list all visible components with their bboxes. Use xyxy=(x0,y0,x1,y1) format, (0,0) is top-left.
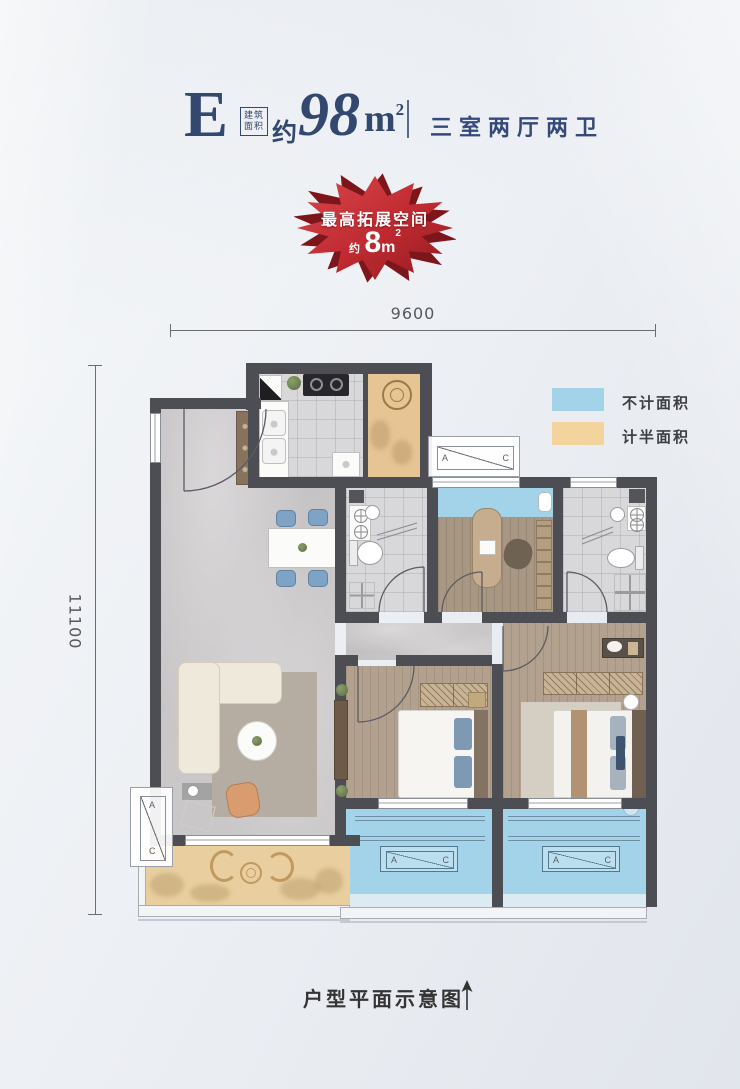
window xyxy=(528,798,622,809)
bath2-cabinet xyxy=(629,489,645,503)
area-tag-line2: 面积 xyxy=(244,121,264,132)
dimension-left-tick-top xyxy=(88,365,102,366)
kitchen-plant xyxy=(287,376,301,390)
bedroom1-pillow xyxy=(454,718,472,750)
wall xyxy=(248,477,438,488)
ac-letter-a: A xyxy=(391,856,397,865)
patio-table-top xyxy=(246,868,256,878)
water-heater-core xyxy=(390,388,404,402)
badge-unit-sup: 2 xyxy=(395,228,401,239)
ac-letter-a: A xyxy=(149,801,155,810)
kitchen-sink xyxy=(262,438,286,464)
bath1-toilet xyxy=(357,541,383,565)
approx-prefix: 约 xyxy=(272,113,297,149)
bedroom2-bench-bowl xyxy=(607,641,622,652)
badge-value: 约 8m2 xyxy=(294,228,456,258)
wall xyxy=(646,477,657,907)
plant xyxy=(336,684,348,696)
dining-plant xyxy=(298,543,307,552)
bedroom2-wardrobe xyxy=(543,672,643,695)
kitchen-sink xyxy=(262,410,286,436)
wall xyxy=(335,798,378,809)
ac-letter-a: A xyxy=(442,454,448,463)
wall xyxy=(246,363,426,374)
railing xyxy=(138,905,350,917)
wall xyxy=(335,655,358,666)
laptop xyxy=(479,540,496,555)
stove-burner xyxy=(310,378,323,391)
bath2-vanity xyxy=(614,574,646,611)
ac-symbol: A C xyxy=(548,851,616,869)
dimension-top-tick-right xyxy=(655,324,656,337)
header: E 建筑 面积 约 98 m2 三室两厅两卫 xyxy=(0,0,740,160)
wall xyxy=(482,612,567,623)
fridge xyxy=(259,375,282,401)
layout-text: 三室两厅两卫 xyxy=(430,110,604,142)
bedroom1-headboard xyxy=(474,710,488,798)
dimension-top-label: 9600 xyxy=(170,304,656,323)
ac-platform-balcony1: A C xyxy=(380,846,458,872)
floor-lamp xyxy=(187,785,199,797)
utility-shadow xyxy=(370,420,390,450)
dishwasher xyxy=(332,452,360,477)
bath2-toilet xyxy=(607,548,635,568)
patio-plant xyxy=(315,868,343,894)
patio-chair xyxy=(210,850,238,882)
area-unit-base: m xyxy=(364,98,396,140)
ac-platform-top: A C xyxy=(428,436,520,477)
wall xyxy=(492,664,503,907)
bedroom1-nightstand xyxy=(468,692,486,708)
wall xyxy=(248,374,259,488)
wall xyxy=(427,488,438,612)
area-type-tag: 建筑 面积 xyxy=(240,107,268,136)
promo-badge: 最高拓展空间 约 8m2 xyxy=(294,168,456,288)
patio-plant xyxy=(150,873,184,897)
bedroom2-throw xyxy=(571,710,587,798)
ac-symbol: A C xyxy=(437,446,514,470)
wall xyxy=(607,612,646,623)
dimension-left-line xyxy=(95,365,96,915)
railing xyxy=(340,907,647,919)
unit-letter: E xyxy=(184,82,228,148)
window xyxy=(570,477,617,488)
fridge-glyph xyxy=(260,376,281,400)
ac-platform-left: A C xyxy=(130,787,173,867)
wall xyxy=(363,374,368,477)
area-unit: m2 xyxy=(364,100,404,138)
plant xyxy=(336,785,348,797)
ac-letter-c: C xyxy=(149,847,156,856)
badge-number: 8 xyxy=(364,226,381,259)
tv-bench xyxy=(334,700,348,780)
badge-approx: 约 xyxy=(349,243,360,255)
ac-symbol: A C xyxy=(140,796,166,861)
ac-letter-c: C xyxy=(605,856,612,865)
footer: 户型平面示意图 xyxy=(0,960,740,1040)
wall xyxy=(396,655,492,666)
area-tag-line1: 建筑 xyxy=(244,110,264,121)
dining-chair xyxy=(308,509,328,526)
balcony-rail-line xyxy=(508,816,640,821)
bath1-vanity xyxy=(349,582,375,609)
wall xyxy=(335,488,346,623)
ac-letter-c: C xyxy=(503,454,510,463)
bookshelf xyxy=(536,520,552,610)
valve-icon xyxy=(630,518,644,532)
ac-letter-c: C xyxy=(443,856,450,865)
balcony-rail-line xyxy=(355,836,485,841)
bedroom2-bench-box xyxy=(628,642,638,655)
bedroom2-cushion xyxy=(616,736,625,770)
dining-chair xyxy=(308,570,328,587)
patio-chair xyxy=(266,852,294,882)
bath2-basin xyxy=(610,507,625,522)
dimension-left-label: 11100 xyxy=(66,592,85,652)
wall xyxy=(150,398,261,409)
window xyxy=(378,798,468,809)
study-stool xyxy=(538,492,552,512)
window xyxy=(432,477,520,488)
plan-caption: 户型平面示意图 xyxy=(303,983,464,1012)
area-number: 98 xyxy=(298,84,360,146)
window xyxy=(150,413,161,463)
wall xyxy=(468,798,528,809)
header-divider xyxy=(407,100,409,138)
wall xyxy=(335,612,379,623)
railing-line xyxy=(138,919,350,921)
north-arrow-icon xyxy=(458,980,476,1012)
floor-plan: A C A C A C A C xyxy=(130,358,687,938)
patio-plant xyxy=(280,878,320,900)
wall xyxy=(622,798,646,809)
dining-chair xyxy=(276,510,296,527)
bath1-cabinet xyxy=(349,490,364,503)
ac-platform-balcony2: A C xyxy=(542,846,620,872)
area-unit-sup: 2 xyxy=(396,100,405,119)
stove-burner xyxy=(330,378,343,391)
dining-chair xyxy=(276,570,296,587)
dimension-top-tick-left xyxy=(170,324,171,337)
armchair xyxy=(224,780,261,819)
sliding-door-window xyxy=(185,835,330,846)
utility-shadow xyxy=(392,440,412,465)
ac-symbol: A C xyxy=(386,851,454,869)
patio-plant xyxy=(190,884,230,902)
bath1-basin xyxy=(365,505,380,520)
balcony-rail-line xyxy=(355,816,485,821)
bath2-meter-box xyxy=(627,506,646,531)
wall xyxy=(553,488,563,612)
coffee-table-plant xyxy=(252,736,262,746)
bath2-toilet-tank xyxy=(635,546,644,570)
sofa-chaise xyxy=(178,662,220,774)
bedroom1-pillow xyxy=(454,756,472,788)
badge-unit: m xyxy=(381,239,395,256)
balcony-rail-line xyxy=(508,836,640,841)
railing-line xyxy=(340,921,647,923)
dimension-left-tick-bottom xyxy=(88,914,102,915)
bedroom2-nightstand xyxy=(623,694,639,710)
wall xyxy=(330,835,360,846)
dimension-top-line xyxy=(170,330,656,331)
ac-letter-a: A xyxy=(553,856,559,865)
valve-icon xyxy=(354,525,368,539)
wall xyxy=(424,612,442,623)
bedroom2-headboard xyxy=(632,710,646,798)
